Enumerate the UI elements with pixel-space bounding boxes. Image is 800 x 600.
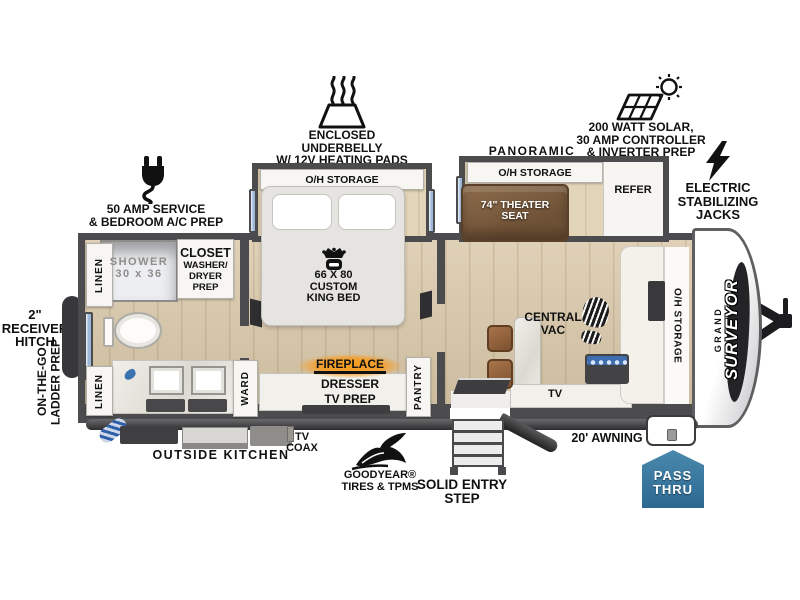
ladder-prep-line2: LADDER PREP (50, 336, 64, 428)
closet-line3: DRYER PREP (178, 271, 233, 293)
brand-grand: GRAND (713, 279, 723, 380)
bedroom-living-wall-lower (437, 352, 445, 406)
amp-service-line1: 50 AMP SERVICE (88, 203, 224, 216)
central-vac-line2: VAC (522, 324, 584, 337)
bedroom-wall-tv-right (420, 291, 432, 320)
entry-step-label: SOLID ENTRY STEP (404, 478, 520, 506)
living-oh-storage: O/H STORAGE (467, 162, 603, 183)
tv-prep-shelf (302, 405, 390, 414)
entry-steps-foot-right (498, 467, 506, 475)
range-burners (587, 356, 627, 365)
dresser-label: DRESSER (300, 377, 400, 391)
toilet-bowl (114, 312, 162, 349)
front-oh-storage-label: O/H STORAGE (672, 288, 683, 363)
fireplace-underline (314, 371, 386, 374)
vanity-mat-right (188, 399, 227, 412)
linen-bottom-cabinet: LINEN (86, 366, 113, 416)
tv-coax-label: TV COAX (280, 432, 324, 454)
power-plug-icon (136, 156, 170, 204)
brand-wrap: GRAND SURVEYOR (694, 254, 760, 404)
underbelly-callout: ENCLOSED UNDERBELLY W/ 12V HEATING PADS (272, 129, 412, 167)
amp-service-line2: & BEDROOM A/C PREP (88, 216, 224, 229)
amp-service-callout: 50 AMP SERVICE & BEDROOM A/C PREP (88, 203, 224, 228)
entry-steps-foot-left (450, 467, 458, 475)
boot-sole (580, 295, 611, 329)
ladder-prep-line1: ON-THE-GO (36, 336, 50, 428)
closet-washer-dryer: CLOSET WASHER/ DRYER PREP (177, 239, 234, 299)
bed-pillow-right (338, 194, 396, 230)
kitchen-counter (510, 384, 632, 408)
bed-line3: KING BED (291, 293, 376, 305)
heating-pads-icon (314, 76, 370, 130)
jacks-line1: ELECTRIC (664, 181, 772, 195)
jacks-line3: JACKS (664, 208, 772, 222)
theater-seat-label: 74" THEATER SEAT (461, 200, 569, 222)
closet-line1: CLOSET (178, 246, 233, 260)
solar-line1: 200 WATT SOLAR, (571, 121, 711, 134)
front-oh-storage-cabinet: O/H STORAGE (664, 247, 689, 404)
bar-stool-top (487, 325, 513, 352)
pass-thru-door (646, 415, 696, 446)
solar-panel-icon (612, 74, 686, 124)
entry-landing (453, 378, 511, 394)
bedroom-slide-window-right (427, 189, 435, 233)
toilet-tank (103, 317, 114, 347)
boot-heel (580, 329, 602, 345)
theater-line2: SEAT (461, 211, 569, 222)
pass-thru-label: PASS THRU (653, 469, 693, 498)
bed-pillow-left (272, 194, 332, 230)
pass-thru-line1: PASS (653, 469, 693, 484)
lightning-bolt-icon (703, 141, 733, 181)
shower-line2: 30 x 36 (100, 268, 178, 280)
entry-step-line1: SOLID ENTRY (404, 478, 520, 492)
ward-label: WARD (240, 371, 251, 406)
pass-thru-line2: THRU (653, 483, 693, 498)
closet-line2: WASHER/ (178, 260, 233, 271)
central-vac-label: CENTRAL VAC (522, 311, 584, 336)
refer-cabinet (603, 162, 663, 236)
goodyear-wingfoot-icon (350, 431, 410, 471)
bed-label: 66 X 80 CUSTOM KING BED (291, 270, 376, 305)
outside-kitchen-griddle (182, 427, 248, 449)
stabilizing-jacks-callout: ELECTRIC STABILIZING JACKS (664, 181, 772, 222)
pass-thru-badge: PASS THRU (642, 450, 704, 508)
outside-kitchen-box-dark (120, 426, 178, 444)
brand-surveyor: SURVEYOR (723, 279, 742, 380)
crown-icon (321, 243, 347, 271)
bed-line1: 66 X 80 (291, 270, 376, 282)
bedroom-slide-window-left (249, 189, 257, 233)
pantry-label: PANTRY (413, 364, 424, 410)
receiver-hitch-line1: 2" RECEIVER (0, 308, 70, 335)
jacks-line2: STABILIZING (664, 195, 772, 209)
shower-line1: SHOWER (100, 256, 178, 268)
bath-bedroom-wall-upper (240, 240, 249, 326)
awning-label: 20' AWNING (562, 431, 652, 445)
tv-label: TV (540, 388, 570, 400)
underbelly-line1: ENCLOSED UNDERBELLY (272, 129, 412, 154)
range-cooktop (585, 354, 629, 384)
refer-label: REFER (603, 184, 663, 196)
pass-thru-latch (667, 429, 677, 441)
vanity-sink-left (149, 366, 184, 395)
front-wall-tv (648, 281, 665, 321)
entry-steps (452, 419, 504, 467)
ward-cabinet: WARD (233, 360, 258, 417)
vanity-sink-right (191, 366, 226, 395)
bedroom-living-wall-upper (437, 240, 445, 304)
shower-label: SHOWER 30 x 36 (100, 256, 178, 280)
linen-bottom-label: LINEN (94, 374, 105, 409)
central-vac-line1: CENTRAL (522, 311, 584, 324)
pantry-cabinet: PANTRY (406, 357, 431, 417)
floorplan-canvas: ENCLOSED UNDERBELLY W/ 12V HEATING PADS … (0, 0, 800, 600)
tv-prep-label: TV PREP (300, 392, 400, 406)
tv-coax-line2: COAX (280, 443, 324, 454)
vanity-mat-left (146, 399, 185, 412)
entry-step-line2: STEP (404, 492, 520, 506)
fireplace-label: FIREPLACE (300, 357, 400, 371)
